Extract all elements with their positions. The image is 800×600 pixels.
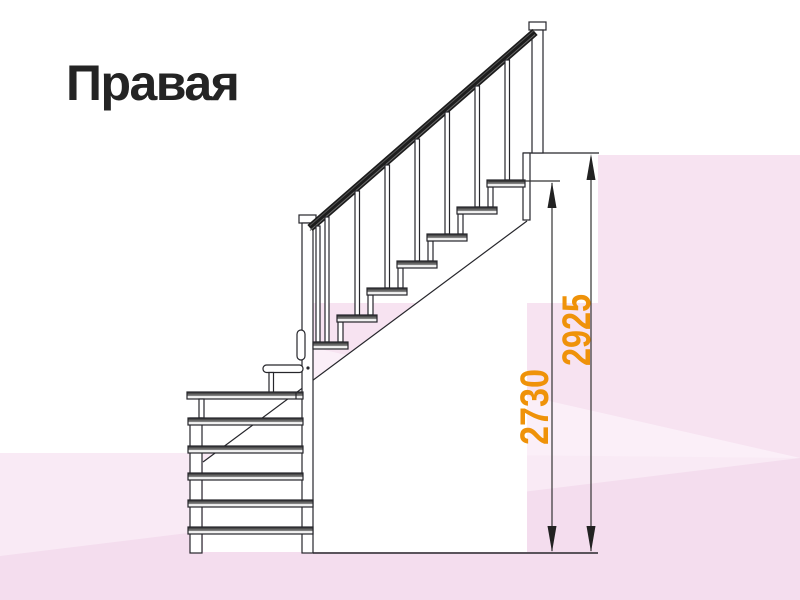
arrow-up-icon: [548, 182, 557, 208]
arrow-down-icon: [587, 526, 596, 552]
dimension-label-2925: 2925: [555, 294, 599, 366]
tread: [427, 234, 467, 241]
arrow-down-icon: [548, 526, 557, 552]
handrail: [310, 30, 535, 231]
winder-step-edge: [188, 527, 313, 534]
tread: [313, 342, 348, 349]
riser-support: [428, 241, 433, 261]
newel-post-top: [532, 30, 543, 153]
riser-support: [488, 187, 493, 207]
baluster: [325, 217, 329, 342]
tread: [457, 207, 497, 214]
winder-landing-tread: [187, 392, 303, 399]
dimension-label-2730: 2730: [513, 369, 557, 445]
winder-step-edge: [188, 500, 313, 507]
riser-support: [368, 295, 373, 315]
post-fastener-dot: [306, 366, 309, 369]
winder-step-edge: [188, 473, 303, 480]
lower-flight: [187, 330, 313, 553]
page-title: Правая: [66, 58, 238, 108]
stringer-line: [203, 221, 527, 462]
arrow-up-icon: [587, 154, 596, 180]
winder-step-edge: [188, 446, 303, 453]
winder-handrail-end: [297, 330, 305, 360]
staircase-drawing-canvas: 2730 2925 Правая: [0, 0, 800, 600]
dimension-2730: [489, 181, 560, 552]
baluster: [316, 226, 320, 342]
winder-step-edge: [188, 418, 303, 425]
baluster: [505, 60, 510, 180]
riser-support: [338, 322, 343, 342]
tread: [397, 261, 437, 268]
winder-handrail: [263, 365, 303, 373]
tread: [337, 315, 377, 322]
riser-support: [199, 399, 204, 418]
baluster: [415, 139, 420, 261]
baluster: [475, 86, 480, 207]
tread: [367, 288, 407, 295]
riser-support: [398, 268, 403, 288]
baluster: [385, 165, 390, 288]
baluster: [355, 191, 360, 315]
riser-support: [458, 214, 463, 234]
baluster: [269, 373, 274, 393]
baluster: [445, 112, 450, 234]
newel-post-top-cap: [529, 22, 546, 30]
